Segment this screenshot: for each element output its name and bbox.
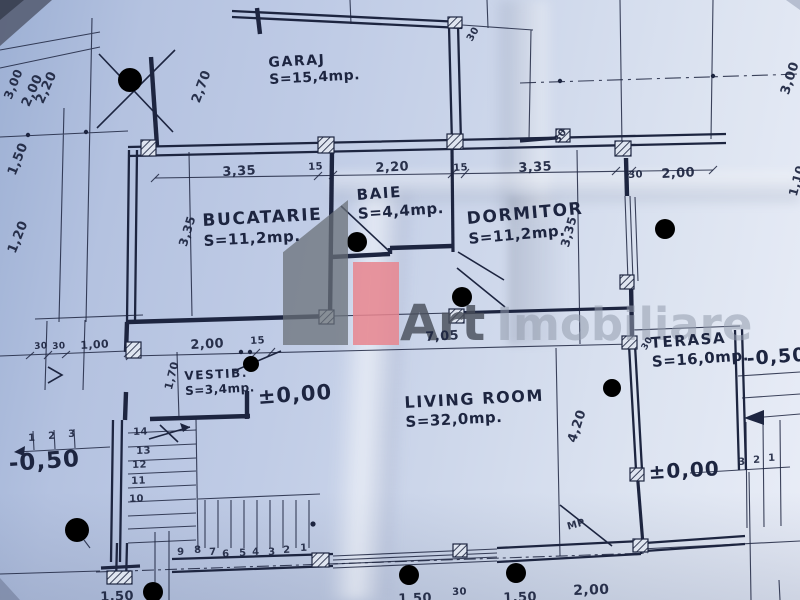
dimension-label: 1,50 — [5, 141, 32, 178]
dimension-label: 1,20 — [5, 219, 32, 256]
stair-step-number: 9 — [177, 547, 185, 558]
stair-step-number: 3 — [68, 429, 76, 440]
stair-step-number: 3 — [738, 457, 746, 468]
dimension-label: 4,20 — [565, 408, 590, 445]
room-label-vestibul: VESTIB.S=3,4mp. — [184, 365, 255, 398]
dimension-label: 2,00 — [661, 165, 695, 182]
level-label: -0,50 — [746, 344, 800, 370]
dimension-label: 1,00 — [80, 337, 109, 351]
dimension-label: 1,50 — [100, 589, 134, 600]
stair-step-number: 14 — [133, 426, 148, 438]
level-label: ±0,00 — [648, 456, 720, 484]
room-area: S=3,4mp. — [185, 380, 255, 398]
room-area: S=15,4mp. — [269, 67, 361, 88]
stair-step-number: 4 — [252, 547, 260, 558]
room-label-living: LIVING ROOMS=32,0mp. — [404, 386, 545, 431]
dimension-label: 2,00 — [190, 336, 224, 353]
label-layer: 3,35152,20153,35302,002,00157,053,353,35… — [0, 0, 800, 600]
dimension-label: 2,70 — [189, 68, 215, 105]
dimension-label: 30 — [628, 169, 643, 181]
dimension-label: 30 — [552, 127, 569, 145]
floorplan-photo: Art Imobiliare 3,35152,20153,35302,002,0… — [0, 0, 800, 600]
dimension-label: 7,05 — [425, 328, 459, 345]
dimension-label: 2,00 — [573, 582, 610, 599]
dimension-label: 1,70 — [162, 360, 182, 391]
room-label-terasa: TERASAS=16,0mp. — [650, 327, 749, 371]
stair-step-number: 8 — [194, 545, 202, 556]
stair-step-number: 2 — [48, 431, 56, 442]
dimension-label: 30 — [34, 341, 48, 352]
dimension-label: 30 — [52, 341, 66, 352]
level-label: -0,50 — [8, 446, 81, 477]
dimension-label: 3,35 — [176, 214, 199, 248]
dimension-label: 2,20 — [375, 159, 409, 176]
dimension-label: 1,10 — [786, 164, 800, 198]
stair-step-number: 6 — [222, 549, 230, 560]
dimension-label: 15 — [453, 162, 468, 174]
room-label-garaj: GARAJS=15,4mp. — [268, 50, 360, 88]
stair-step-number: 3 — [268, 547, 276, 558]
stair-step-number: 11 — [131, 475, 146, 487]
stair-step-number: 1 — [768, 453, 776, 464]
dimension-label: 3,35 — [222, 163, 256, 180]
dimension-label: 30 — [452, 586, 467, 598]
level-label: ±0,00 — [257, 380, 333, 409]
stair-step-number: 1 — [300, 543, 308, 554]
room-label-bucatarie: BUCATARIES=11,2mp. — [202, 205, 324, 250]
dimension-label: 3,00 — [778, 60, 800, 97]
dimension-label: 1,50 — [503, 590, 537, 600]
stair-step-number: 7 — [209, 547, 217, 558]
stair-step-number: 12 — [132, 459, 147, 471]
room-label-baie: BAIES=4,4mp. — [356, 180, 444, 223]
dimension-label: 1,50 — [398, 591, 432, 600]
dimension-label: MP — [566, 517, 586, 532]
dimension-label: 30 — [465, 25, 482, 43]
stair-step-number: 5 — [239, 548, 247, 559]
stair-step-number: 13 — [136, 445, 151, 457]
stair-step-number: 1 — [28, 433, 36, 444]
dimension-label: 15 — [308, 161, 323, 173]
dimension-label: 3,35 — [518, 159, 552, 176]
stair-step-number: 10 — [129, 493, 144, 505]
stair-step-number: 2 — [753, 455, 761, 466]
dimension-label: 15 — [250, 335, 265, 347]
stair-step-number: 2 — [283, 545, 291, 556]
